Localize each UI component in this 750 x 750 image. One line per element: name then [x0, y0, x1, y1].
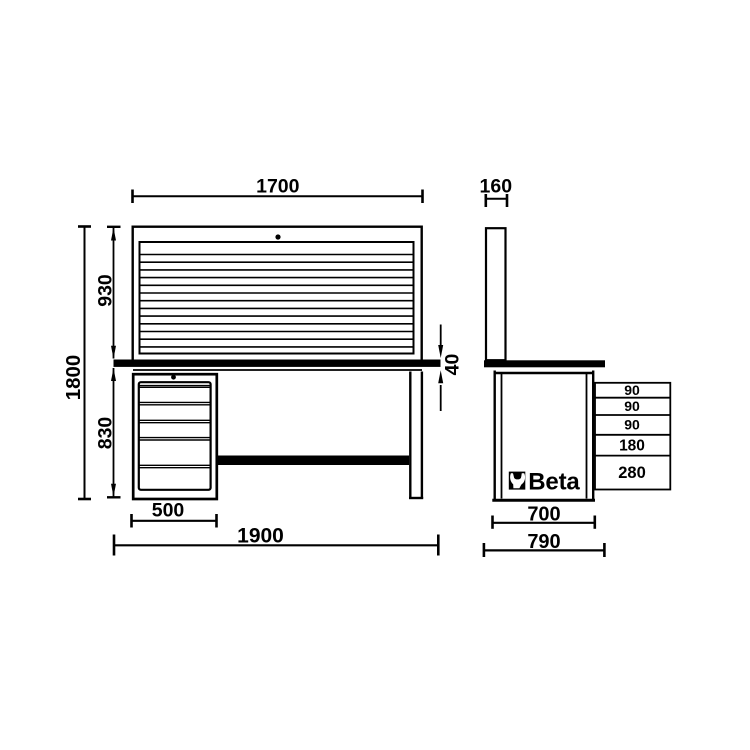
svg-text:90: 90	[624, 382, 640, 398]
svg-text:40: 40	[442, 354, 464, 376]
svg-text:Beta: Beta	[528, 468, 580, 495]
svg-text:280: 280	[618, 464, 646, 482]
svg-text:90: 90	[624, 417, 640, 433]
svg-text:180: 180	[619, 438, 645, 455]
svg-text:90: 90	[624, 398, 640, 414]
svg-text:1900: 1900	[237, 525, 284, 548]
svg-text:1800: 1800	[62, 355, 85, 401]
svg-text:500: 500	[152, 500, 185, 522]
svg-text:1700: 1700	[256, 176, 300, 198]
